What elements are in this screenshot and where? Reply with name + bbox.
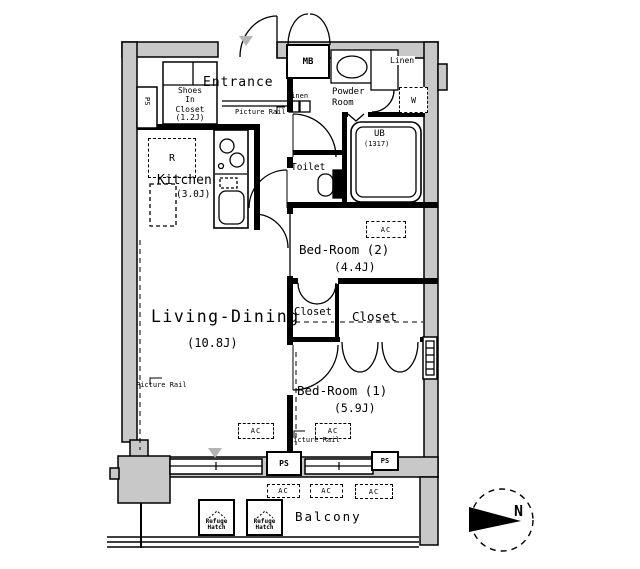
- meter-box-door: [288, 14, 308, 45]
- refrigerator-box: R: [148, 138, 196, 178]
- refuge-hatch: Refuge Hatch: [246, 499, 283, 536]
- bathtub: [351, 122, 421, 202]
- air-conditioner-box: AC: [355, 484, 393, 499]
- closet-label: Closet: [352, 310, 397, 325]
- meter-box-door: [310, 14, 330, 45]
- closet-bifold-door: [400, 342, 418, 372]
- air-conditioner-box: AC: [310, 484, 343, 498]
- living-dining-size: (10.8J): [187, 336, 238, 350]
- compass: [469, 489, 533, 551]
- linen-small-label: Linen: [287, 92, 308, 100]
- refuge-hatch: Refuge Hatch: [198, 499, 235, 536]
- north-label: N: [514, 503, 523, 521]
- air-conditioner-box: AC: [366, 221, 406, 238]
- shoes-closet-label: Shoes In Closet: [164, 86, 216, 114]
- closet-bifold-door: [382, 342, 400, 372]
- bedroom1-label: Bed-Room (1): [297, 384, 387, 399]
- balcony-label: Balcony: [295, 510, 362, 525]
- toilet-tank: [333, 170, 342, 198]
- closet-bifold-door: [342, 342, 360, 372]
- powder-room-label: Powder Room: [332, 87, 365, 108]
- bedroom2-label: Bed-Room (2): [299, 243, 389, 258]
- toilet-label: Toilet: [291, 162, 325, 173]
- meter-box: MB: [286, 44, 330, 79]
- kitchen-size: (3.0J): [176, 189, 210, 200]
- closet-double-door: [317, 283, 336, 304]
- kitchen-label: Kitchen: [157, 173, 212, 188]
- linen-shelf: [300, 101, 310, 112]
- ub-door: [348, 114, 364, 121]
- air-conditioner-box: AC: [267, 484, 300, 498]
- toilet-bowl: [318, 174, 333, 196]
- washer-box: W: [399, 87, 428, 113]
- unit-bath-size: (1317): [364, 140, 389, 148]
- closet-bifold-door: [360, 342, 378, 372]
- picture-rail-label: Picture Rail: [289, 436, 340, 444]
- pipe-space-box: PS: [371, 451, 399, 471]
- picture-rail-label: Picture Rail: [235, 108, 286, 116]
- air-conditioner-box: AC: [238, 423, 274, 439]
- counter-dashed: [150, 184, 176, 226]
- closet-label: Closet: [294, 306, 332, 318]
- floorplan: Entrance Shoes In Closet (1.2J) PS Powde…: [0, 0, 640, 569]
- unit-bath-label: UB: [374, 129, 385, 140]
- closet-double-door: [298, 283, 317, 304]
- picture-rail-label: Picture Rail: [136, 381, 187, 389]
- pipe-space-box: PS: [266, 451, 302, 476]
- bedroom1-size: (5.9J): [334, 402, 376, 416]
- pipe-space-left-label: PS: [143, 97, 151, 105]
- linen-label: Linen: [389, 56, 415, 65]
- linen-door: [372, 90, 394, 112]
- bedroom2-size: (4.4J): [334, 261, 376, 275]
- living-dining-label: Living-Dining: [151, 307, 300, 326]
- pipe-space-left-box: [137, 87, 157, 128]
- dashed-lines: [140, 240, 423, 450]
- shoes-closet-size: (1.2J): [164, 113, 216, 122]
